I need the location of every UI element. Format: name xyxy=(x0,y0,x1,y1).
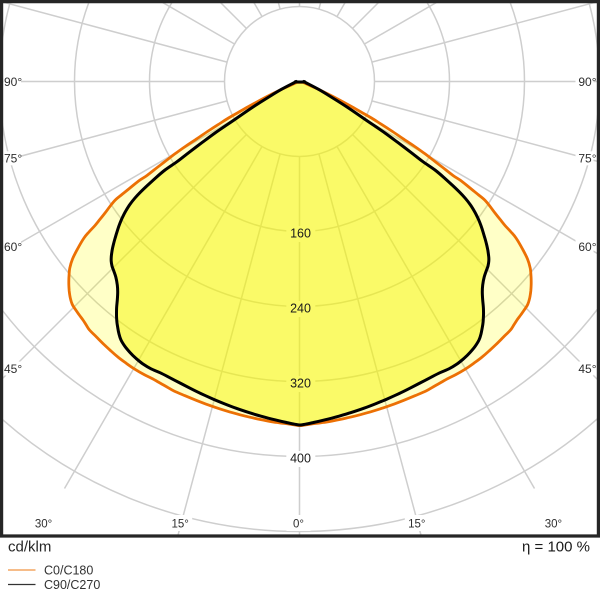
svg-text:15°: 15° xyxy=(408,519,425,531)
svg-text:160: 160 xyxy=(290,227,311,241)
svg-text:cd/klm: cd/klm xyxy=(8,539,51,556)
svg-text:240: 240 xyxy=(290,302,311,316)
svg-text:400: 400 xyxy=(290,452,311,466)
svg-text:320: 320 xyxy=(290,377,311,391)
svg-text:C90/C270: C90/C270 xyxy=(44,578,100,592)
svg-text:60°: 60° xyxy=(578,240,596,254)
svg-text:η = 100 %: η = 100 % xyxy=(522,539,590,556)
svg-text:75°: 75° xyxy=(4,152,22,166)
svg-text:30°: 30° xyxy=(35,519,52,531)
svg-text:C0/C180: C0/C180 xyxy=(44,564,93,578)
svg-text:90°: 90° xyxy=(578,75,596,89)
svg-text:60°: 60° xyxy=(4,240,22,254)
svg-text:30°: 30° xyxy=(545,519,562,531)
svg-text:75°: 75° xyxy=(578,152,596,166)
svg-text:45°: 45° xyxy=(4,362,22,376)
svg-text:90°: 90° xyxy=(4,75,22,89)
svg-text:0°: 0° xyxy=(293,519,304,531)
svg-text:45°: 45° xyxy=(578,362,596,376)
svg-text:15°: 15° xyxy=(172,519,189,531)
